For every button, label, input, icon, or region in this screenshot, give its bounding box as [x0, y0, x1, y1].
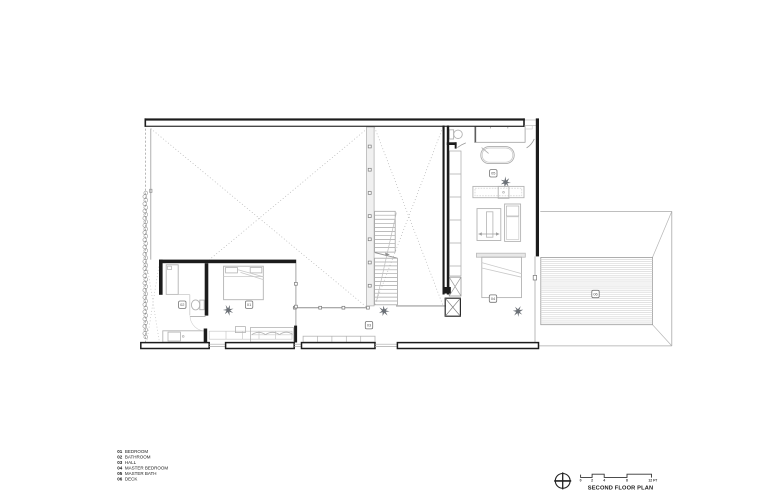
svg-text:04: 04 [117, 466, 123, 471]
svg-text:SECOND FLOOR PLAN: SECOND FLOOR PLAN [588, 486, 653, 492]
svg-text:MASTER BEDROOM: MASTER BEDROOM [125, 466, 169, 471]
svg-text:02: 02 [180, 302, 184, 307]
svg-text:DECK: DECK [125, 477, 138, 482]
svg-text:2: 2 [591, 479, 593, 483]
svg-text:HALL: HALL [125, 460, 137, 465]
svg-text:12 FT: 12 FT [648, 479, 658, 483]
svg-text:05: 05 [491, 171, 495, 176]
svg-text:BEDROOM: BEDROOM [125, 449, 149, 454]
svg-text:02: 02 [117, 454, 123, 459]
svg-text:MASTER BATH: MASTER BATH [125, 471, 157, 476]
svg-text:4: 4 [603, 479, 605, 483]
svg-text:01: 01 [117, 449, 123, 454]
svg-text:BATHROOM: BATHROOM [125, 454, 151, 459]
svg-text:01: 01 [247, 302, 251, 307]
svg-text:06: 06 [593, 291, 597, 296]
svg-text:03: 03 [117, 460, 123, 465]
svg-text:0: 0 [580, 479, 582, 483]
svg-text:05: 05 [117, 471, 123, 476]
svg-text:06: 06 [117, 477, 123, 482]
svg-text:03: 03 [367, 323, 371, 328]
svg-text:8: 8 [626, 479, 628, 483]
